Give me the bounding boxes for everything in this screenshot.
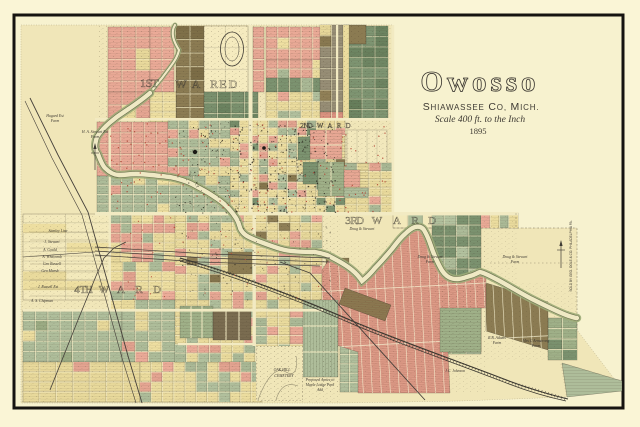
svg-text:J.C. Johnson: J.C. Johnson (445, 369, 465, 373)
svg-text:R: R (411, 215, 419, 227)
svg-text:Farm: Farm (50, 119, 60, 123)
svg-text:E: E (219, 77, 226, 91)
svg-text:J. Russell Est: J. Russell Est (38, 285, 59, 289)
svg-text:D: D (428, 215, 436, 227)
svg-text:D: D (229, 77, 238, 91)
svg-text:Hugard Est: Hugard Est (45, 114, 64, 118)
svg-text:J. Stewart: J. Stewart (44, 240, 60, 244)
svg-text:Doug & Stewart: Doug & Stewart (349, 227, 376, 231)
svg-text:W: W (99, 284, 110, 296)
svg-text:D: D (345, 122, 350, 130)
svg-text:Stanley Line: Stanley Line (49, 229, 68, 233)
svg-text:Geo Russell: Geo Russell (43, 262, 61, 266)
svg-text:H. A. Stewart Est: H. A. Stewart Est (81, 130, 109, 134)
svg-text:A. Whitcomb: A. Whitcomb (41, 255, 62, 259)
svg-text:Farm: Farm (531, 344, 541, 348)
svg-text:A: A (393, 215, 401, 227)
svg-text:R: R (135, 284, 143, 296)
svg-text:Add: Add (316, 388, 323, 392)
svg-text:D: D (356, 215, 364, 227)
svg-text:Geo Marsh: Geo Marsh (41, 269, 58, 273)
svg-text:R: R (210, 77, 218, 91)
svg-text:A: A (192, 77, 201, 91)
svg-text:Farm: Farm (425, 260, 435, 264)
svg-text:Doug & Stewart: Doug & Stewart (502, 255, 529, 259)
svg-text:Owosso: Owosso (420, 66, 539, 98)
svg-text:SHIAWASSEE CO, MICH.: SHIAWASSEE CO, MICH. (423, 101, 540, 113)
svg-text:Farm: Farm (90, 135, 100, 139)
svg-text:Proposed Annex to: Proposed Annex to (305, 378, 335, 382)
svg-text:A: A (117, 284, 125, 296)
svg-text:Farm: Farm (492, 341, 502, 345)
svg-text:SOLD BY GEO. OGLE & CO. PHILAD: SOLD BY GEO. OGLE & CO. PHILADELPHIA PA. (569, 220, 573, 291)
svg-text:T: T (151, 76, 159, 90)
svg-text:D: D (307, 122, 312, 130)
svg-text:Farm: Farm (510, 260, 520, 264)
svg-text:W: W (175, 77, 187, 91)
svg-text:Scale 400 ft. to the Inch: Scale 400 ft. to the Inch (435, 114, 525, 125)
svg-text:Doug & Stewart: Doug & Stewart (417, 255, 444, 259)
svg-text:Mrs C Armstrong: Mrs C Armstrong (522, 339, 550, 343)
svg-text:H: H (85, 284, 93, 296)
svg-text:D: D (153, 284, 161, 296)
svg-text:Maple Lodge Park: Maple Lodge Park (305, 383, 335, 387)
svg-text:1895: 1895 (470, 126, 487, 136)
svg-text:W: W (317, 122, 324, 130)
svg-text:A. Gould: A. Gould (42, 248, 57, 252)
svg-text:W: W (372, 215, 383, 227)
svg-text:A: A (327, 122, 332, 130)
svg-text:R.B. Adams: R.B. Adams (487, 336, 506, 340)
svg-text:R: R (337, 122, 342, 130)
svg-text:A. S. Chipman: A. S. Chipman (30, 299, 53, 303)
